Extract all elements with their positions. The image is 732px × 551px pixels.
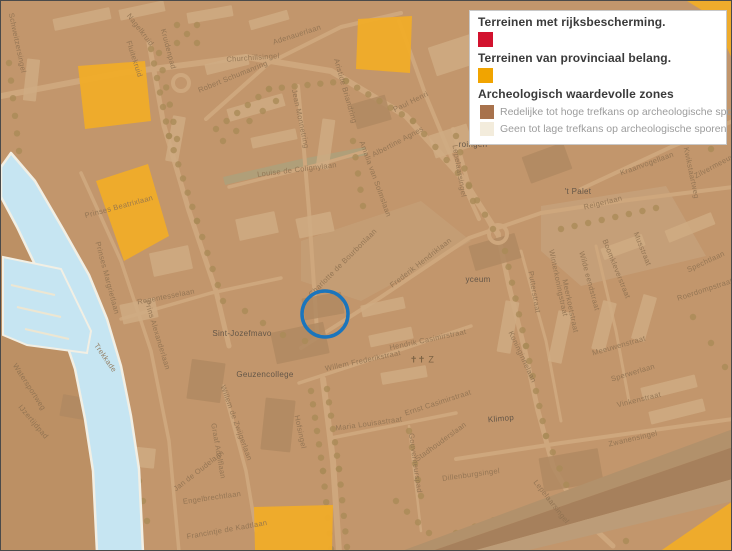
legend-title-provinciaal: Terreinen van provinciaal belang. [478, 51, 718, 66]
map-legend: Terreinen met rijksbescherming. Terreine… [469, 10, 727, 145]
legend-swatch-cream [480, 122, 494, 136]
legend-item-label: Redelijke tot hoge trefkans op archeolog… [500, 106, 732, 118]
map-viewport[interactable]: SchweitzersingelFluitekruidNagelkruidKru… [0, 0, 732, 551]
legend-item-lage-trefkans: Geen tot lage trefkans op archeologische… [478, 122, 718, 136]
legend-item-label: Geen tot lage trefkans op archeologische… [500, 123, 726, 135]
legend-title-zones: Archeologisch waardevolle zones [478, 87, 718, 102]
legend-item-hoge-trefkans: Redelijke tot hoge trefkans op archeolog… [478, 105, 718, 119]
legend-swatch-brown [480, 105, 494, 119]
poi-label: 't Palet [565, 187, 592, 196]
legend-swatch-red [478, 32, 493, 47]
provincial-zone-polygon[interactable] [254, 505, 333, 550]
poi-label: yceum [465, 275, 490, 284]
provincial-zone-polygon[interactable] [356, 16, 412, 73]
poi-label: Sint-Jozefmavo [212, 329, 272, 338]
poi-label: Geuzencollege [236, 370, 294, 379]
church-symbol: ✝✝ Z [410, 354, 434, 364]
legend-swatch-orange [478, 68, 493, 83]
legend-title-rijksbescherming: Terreinen met rijksbescherming. [478, 15, 718, 30]
